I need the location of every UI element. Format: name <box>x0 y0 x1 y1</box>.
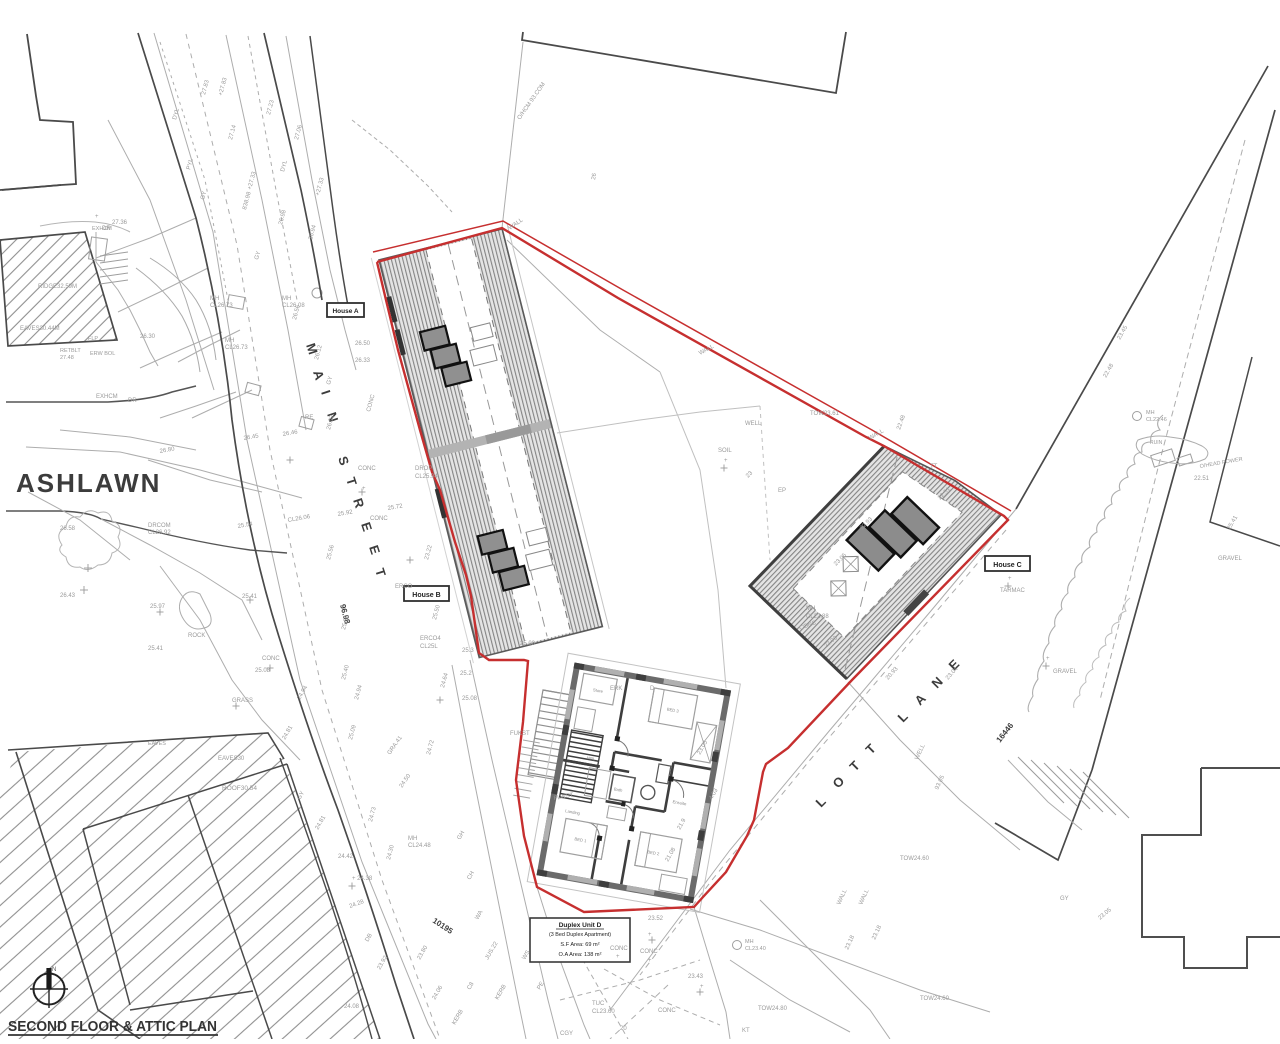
svg-text:GRASS: GRASS <box>232 698 253 704</box>
svg-text:DR: DR <box>102 226 111 232</box>
svg-text:O.A Area: 138 m²: O.A Area: 138 m² <box>559 952 602 958</box>
svg-text:TOW24.80: TOW24.80 <box>758 1006 788 1012</box>
svg-text:TOW24.60: TOW24.60 <box>920 996 950 1002</box>
svg-text:DROP: DROP <box>415 466 432 472</box>
svg-text:+: + <box>724 458 728 464</box>
svg-text:26.33: 26.33 <box>355 358 371 364</box>
svg-text:CL22.46: CL22.46 <box>1146 417 1167 423</box>
svg-text:SECOND FLOOR & ATTIC PLAN: SECOND FLOOR & ATTIC PLAN <box>8 1019 217 1035</box>
svg-text:CL24.48: CL24.48 <box>408 843 431 849</box>
svg-text:WELL: WELL <box>745 421 762 427</box>
svg-text:24.08: 24.08 <box>344 1004 360 1010</box>
svg-text:25.2: 25.2 <box>460 671 472 677</box>
svg-text:RE: RE <box>305 415 313 421</box>
svg-text:22.51: 22.51 <box>1194 476 1210 482</box>
svg-text:House B: House B <box>412 592 440 599</box>
svg-text:ERCO4: ERCO4 <box>420 636 441 642</box>
svg-text:EAVES: EAVES <box>148 741 166 747</box>
svg-text:CL23.60: CL23.60 <box>592 1009 615 1015</box>
svg-text:TUC: TUC <box>592 1001 605 1007</box>
svg-text:GRAVEL: GRAVEL <box>1218 556 1243 562</box>
svg-text:+: + <box>362 486 366 492</box>
svg-text:House A: House A <box>332 308 358 315</box>
svg-text:CL22.88: CL22.88 <box>806 614 829 620</box>
svg-text:20: 20 <box>620 1026 627 1032</box>
svg-text:GRAVEL: GRAVEL <box>1053 669 1078 675</box>
svg-text:CL26.92: CL26.92 <box>148 530 171 536</box>
svg-text:24.42: 24.42 <box>338 854 354 860</box>
svg-text:CL23.40: CL23.40 <box>745 946 766 952</box>
svg-text:RIDGE32.59M: RIDGE32.59M <box>38 284 77 290</box>
svg-text:House C: House C <box>993 562 1021 569</box>
svg-text:Duplex Unit D: Duplex Unit D <box>559 922 602 929</box>
svg-text:TARMAC: TARMAC <box>1000 588 1026 594</box>
svg-text:26.43: 26.43 <box>60 593 76 599</box>
svg-text:CONC: CONC <box>358 466 376 472</box>
svg-text:N: N <box>52 967 56 973</box>
svg-text:CONC: CONC <box>370 516 388 522</box>
svg-text:+: + <box>700 984 704 990</box>
svg-text:S.F Area: 69 m²: S.F Area: 69 m² <box>560 942 599 948</box>
svg-text:RUIN: RUIN <box>1150 440 1163 446</box>
svg-text:+: + <box>95 214 99 220</box>
svg-text:25.08: 25.08 <box>520 641 536 647</box>
svg-text:26.50: 26.50 <box>355 341 371 347</box>
svg-text:TT: TT <box>930 464 938 470</box>
svg-text:26.58: 26.58 <box>60 526 76 532</box>
svg-text:+ 24.38: + 24.38 <box>352 876 373 882</box>
svg-text:ERCO: ERCO <box>395 584 413 590</box>
svg-text:MH: MH <box>282 296 291 302</box>
svg-text:EAVES30: EAVES30 <box>218 756 245 762</box>
svg-text:25.08: 25.08 <box>255 668 271 674</box>
svg-text:CONC: CONC <box>262 656 280 662</box>
svg-text:+: + <box>616 954 620 960</box>
svg-text:25.08: 25.08 <box>462 696 478 702</box>
svg-text:GY: GY <box>1060 896 1069 902</box>
svg-text:+: + <box>1046 656 1050 662</box>
svg-text:27.36: 27.36 <box>112 220 128 226</box>
svg-text:MH: MH <box>210 296 219 302</box>
svg-text:ERK: ERK <box>610 686 622 692</box>
svg-text:CL26.73: CL26.73 <box>210 303 233 309</box>
svg-text:MH: MH <box>1146 410 1155 416</box>
svg-text:CGY: CGY <box>560 1031 573 1037</box>
svg-text:MH: MH <box>225 338 234 344</box>
svg-text:TOW23.61: TOW23.61 <box>810 411 840 417</box>
svg-text:MH: MH <box>408 836 417 842</box>
svg-text:27.48: 27.48 <box>60 355 74 361</box>
svg-text:RETBLT: RETBLT <box>60 348 81 354</box>
svg-text:23.52: 23.52 <box>648 916 664 922</box>
svg-text:ASHLAWN: ASHLAWN <box>16 468 161 498</box>
svg-text:CL25L: CL25L <box>420 644 438 650</box>
svg-text:(3 Bed Duplex Apartment): (3 Bed Duplex Apartment) <box>549 932 611 938</box>
svg-text:EAVES30.44M: EAVES30.44M <box>20 326 60 332</box>
svg-text:25.3: 25.3 <box>462 648 474 654</box>
svg-text:CL26.08: CL26.08 <box>282 303 305 309</box>
svg-text:TOW24.60: TOW24.60 <box>900 856 930 862</box>
svg-text:EP: EP <box>778 488 786 494</box>
svg-text:FLP: FLP <box>88 336 98 342</box>
svg-text:MH: MH <box>806 606 815 612</box>
svg-text:EXHCM: EXHCM <box>96 394 118 400</box>
svg-text:23.43: 23.43 <box>688 974 704 980</box>
svg-text:ERW BOL: ERW BOL <box>90 351 115 357</box>
svg-text:SOIL: SOIL <box>718 448 732 454</box>
svg-text:+: + <box>648 958 652 964</box>
svg-text:MH: MH <box>745 939 754 945</box>
svg-text:ROCK: ROCK <box>188 633 205 639</box>
svg-text:CONC: CONC <box>658 1008 676 1014</box>
svg-text:D: D <box>650 686 655 692</box>
svg-text:+: + <box>648 932 652 938</box>
svg-text:26.30: 26.30 <box>140 334 156 340</box>
svg-text:25.97: 25.97 <box>150 604 166 610</box>
svg-text:CONC: CONC <box>610 946 628 952</box>
svg-text:CL26.73: CL26.73 <box>225 345 248 351</box>
svg-text:DRCOM: DRCOM <box>148 523 171 529</box>
svg-text:ROOF30.54: ROOF30.54 <box>222 785 257 792</box>
svg-text:CL25.94: CL25.94 <box>415 474 438 480</box>
svg-text:25.41: 25.41 <box>148 646 164 652</box>
svg-text:FUKST: FUKST <box>510 731 530 737</box>
svg-text:KT: KT <box>742 1028 750 1034</box>
svg-text:DR: DR <box>128 398 137 404</box>
svg-text:CONC: CONC <box>640 949 658 955</box>
svg-text:+: + <box>1008 576 1012 582</box>
